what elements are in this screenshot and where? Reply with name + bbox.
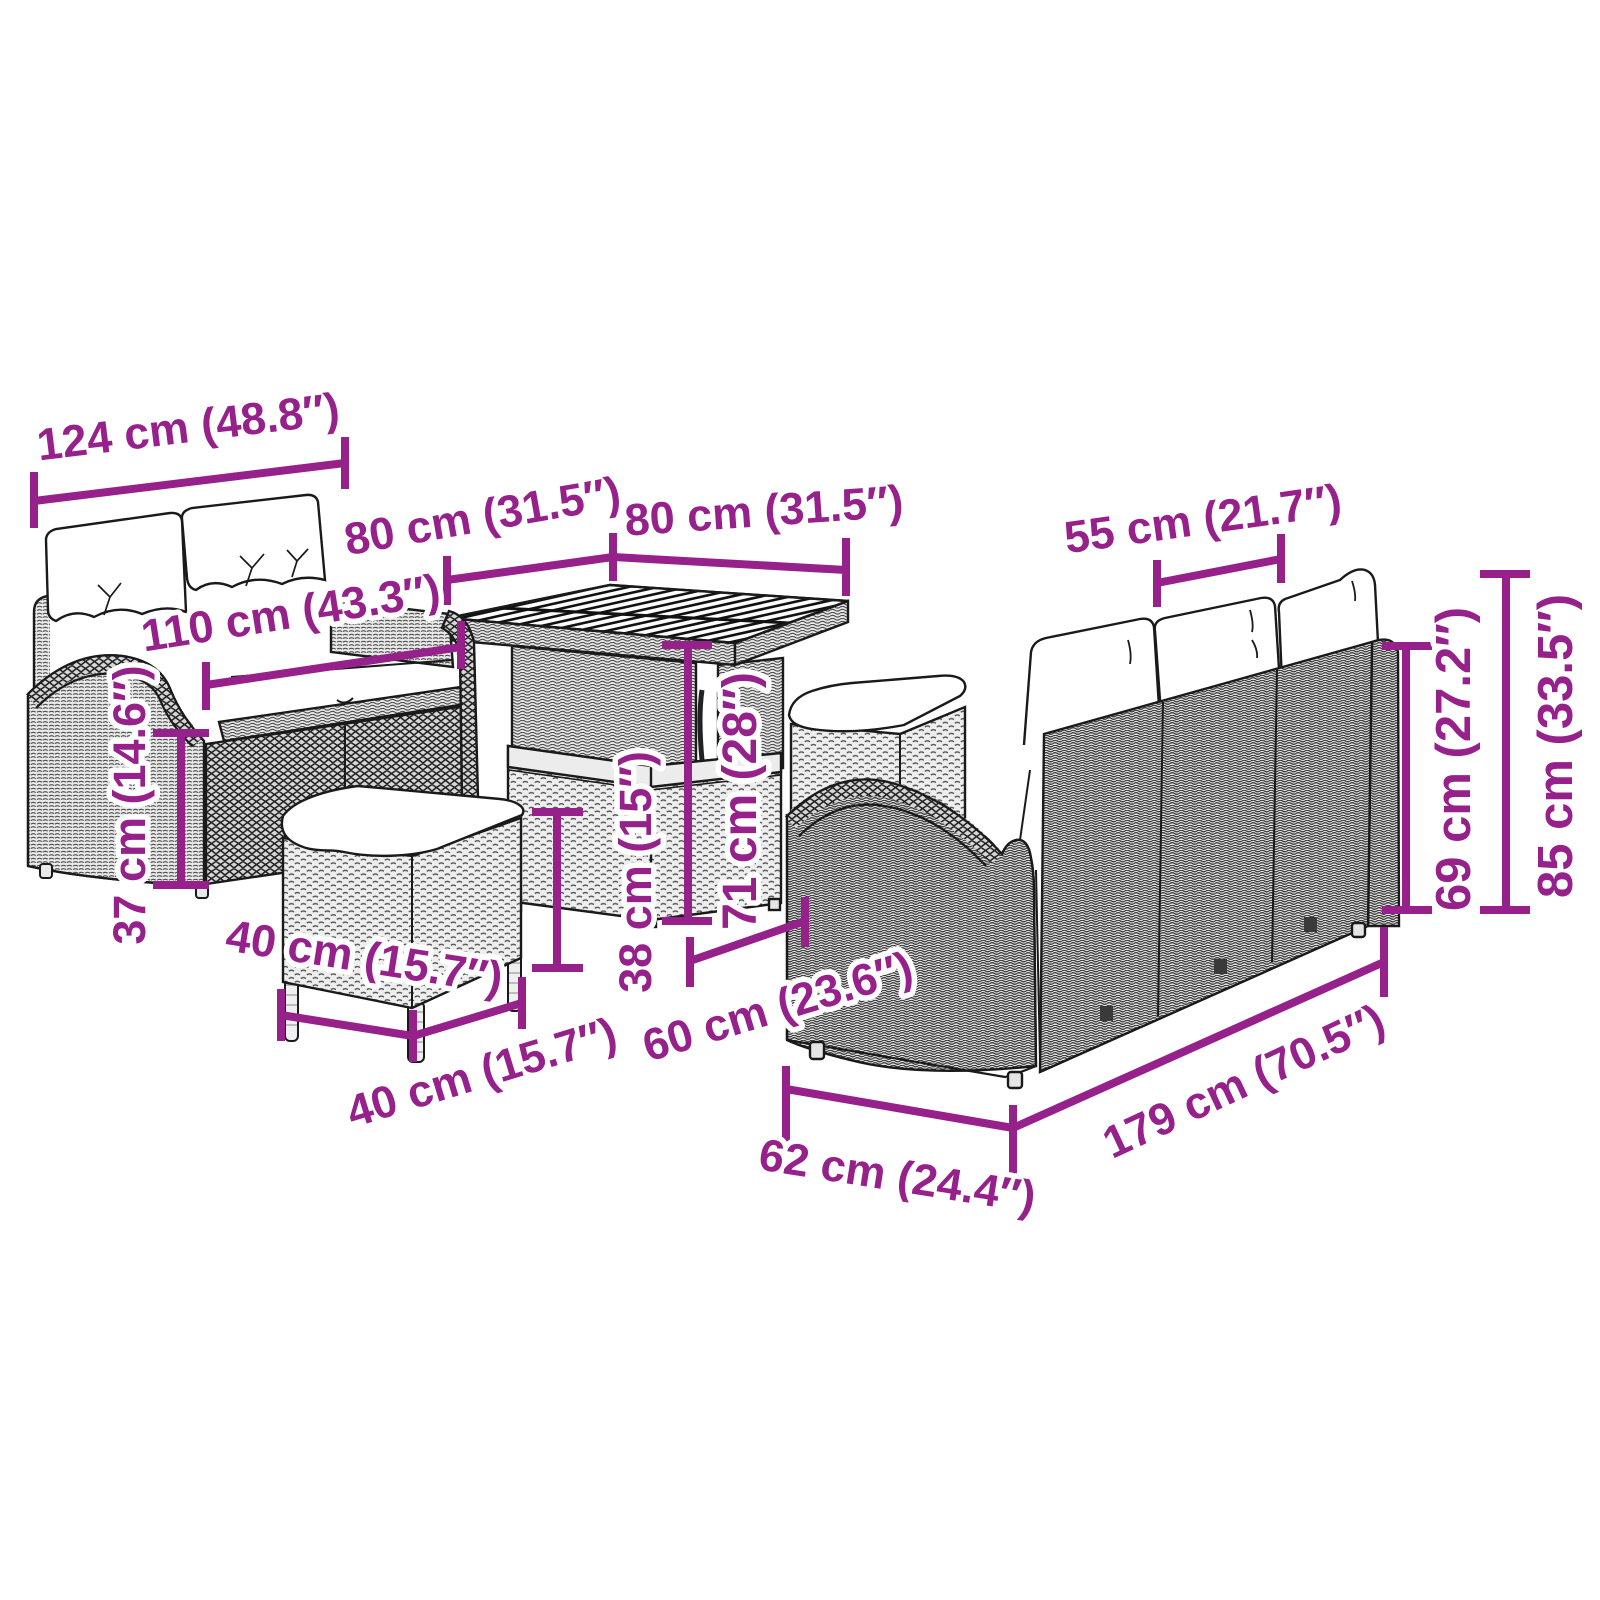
- svg-text:124 cm (48.8″): 124 cm (48.8″): [34, 383, 342, 471]
- svg-text:80 cm (31.5″): 80 cm (31.5″): [340, 466, 624, 565]
- svg-text:38 cm (15″): 38 cm (15″): [610, 751, 661, 993]
- svg-text:37 cm (14.6″): 37 cm (14.6″): [104, 665, 155, 944]
- svg-text:55 cm (21.7″): 55 cm (21.7″): [1061, 474, 1345, 563]
- svg-text:62 cm (24.4″): 62 cm (24.4″): [756, 1129, 1040, 1223]
- svg-text:71 cm (28″): 71 cm (28″): [714, 672, 767, 930]
- svg-text:69 cm (27.2″): 69 cm (27.2″): [1427, 607, 1481, 911]
- svg-text:85 cm (33.5″): 85 cm (33.5″): [1529, 594, 1583, 898]
- svg-text:80 cm (31.5″): 80 cm (31.5″): [623, 475, 905, 545]
- svg-text:40 cm (15.7″): 40 cm (15.7″): [341, 1007, 623, 1137]
